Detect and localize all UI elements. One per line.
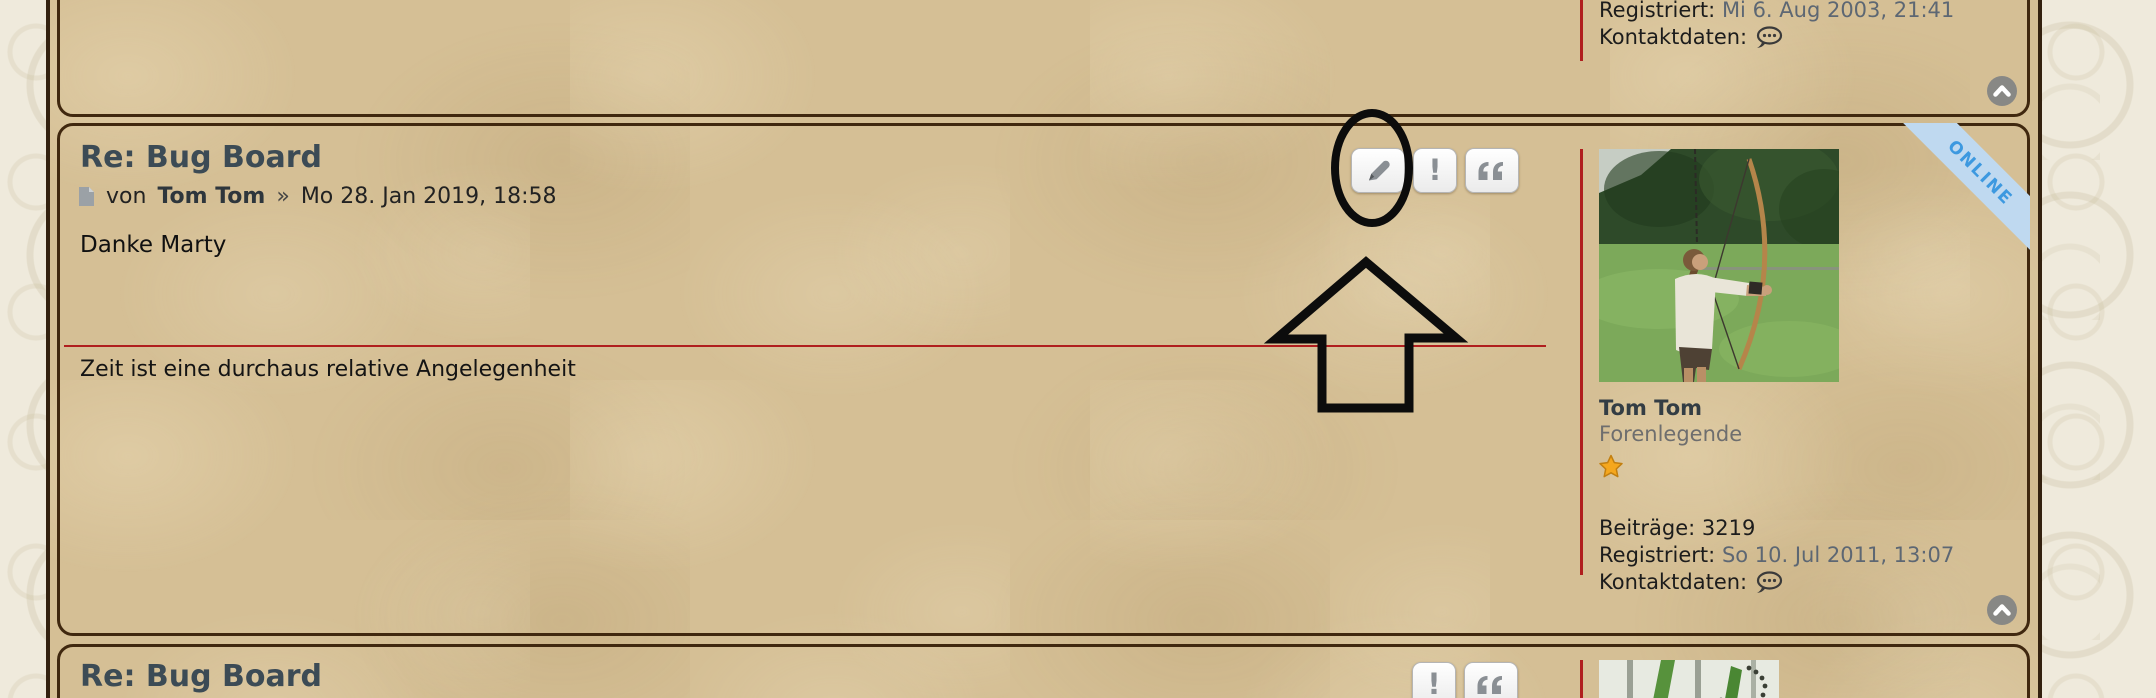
report-post-button[interactable]: ! (1412, 662, 1456, 698)
posts-count-row: Beiträge: 3219 (1599, 515, 1954, 542)
profile-panel: Tom Tom Forenlegende Beiträge: 3219 Regi… (1580, 149, 1954, 575)
byline-prefix: von (106, 184, 146, 209)
post-main: ONLINE Re: Bug Board von Tom Tom » Mo 28… (57, 123, 2030, 636)
scroll-to-top-button[interactable] (1987, 595, 2017, 625)
post-action-buttons: ! (1412, 662, 1518, 698)
rank-star-icon (1599, 454, 1623, 478)
registered-value: Mi 6. Aug 2003, 21:41 (1722, 0, 1954, 22)
post-previous: Registriert: Mi 6. Aug 2003, 21:41 Konta… (57, 0, 2030, 117)
contact-label: Kontaktdaten: (1599, 24, 1747, 51)
post-subject-link[interactable]: Re: Bug Board (80, 140, 322, 175)
pm-speech-bubble-icon[interactable] (1755, 26, 1785, 50)
post-action-buttons: ! (1351, 148, 1519, 193)
registered-label: Registriert: (1599, 0, 1715, 22)
quote-post-button[interactable] (1465, 148, 1519, 193)
post-page-icon[interactable] (78, 186, 95, 207)
contact-label: Kontaktdaten: (1599, 569, 1747, 596)
post-body-text: Danke Marty (80, 232, 226, 258)
contact-row: Kontaktdaten: (1599, 569, 1954, 596)
double-quote-icon (1476, 675, 1506, 695)
edit-post-button[interactable] (1351, 148, 1405, 193)
exclamation-icon: ! (1428, 156, 1441, 185)
contact-row: Kontaktdaten: (1599, 24, 1954, 51)
author-link[interactable]: Tom Tom (157, 184, 265, 209)
profile-panel (1580, 660, 1779, 698)
registered-label: Registriert: (1599, 543, 1715, 567)
post-next: Re: Bug Board ! (57, 644, 2030, 698)
scroll-to-top-button[interactable] (1987, 76, 2017, 106)
profile-panel: Registriert: Mi 6. Aug 2003, 21:41 Konta… (1580, 0, 1954, 61)
profile-username-link[interactable]: Tom Tom (1599, 396, 1954, 420)
registered-value: So 10. Jul 2011, 13:07 (1722, 543, 1954, 567)
avatar-image (1599, 149, 1954, 386)
post-subject-link[interactable]: Re: Bug Board (80, 659, 322, 694)
quote-post-button[interactable] (1464, 662, 1518, 698)
pencil-icon (1365, 157, 1392, 184)
pm-speech-bubble-icon[interactable] (1755, 571, 1785, 595)
registered-row: Registriert: Mi 6. Aug 2003, 21:41 (1599, 0, 1954, 24)
signature-divider (64, 345, 1546, 347)
post-byline: von Tom Tom » Mo 28. Jan 2019, 18:58 (78, 184, 557, 209)
registered-row: Registriert: So 10. Jul 2011, 13:07 (1599, 542, 1954, 569)
double-quote-icon (1477, 161, 1507, 181)
posts-count-value[interactable]: 3219 (1702, 516, 1755, 540)
post-datetime: Mo 28. Jan 2019, 18:58 (301, 184, 557, 209)
exclamation-icon: ! (1427, 670, 1440, 698)
avatar-image (1599, 660, 1779, 698)
profile-rank: Forenlegende (1599, 422, 1954, 446)
byline-separator: » (276, 184, 289, 209)
forum-page: Registriert: Mi 6. Aug 2003, 21:41 Konta… (0, 0, 2156, 698)
signature-text: Zeit ist eine durchaus relative Angelege… (80, 357, 576, 382)
report-post-button[interactable]: ! (1413, 148, 1457, 193)
posts-count-label: Beiträge: (1599, 516, 1695, 540)
